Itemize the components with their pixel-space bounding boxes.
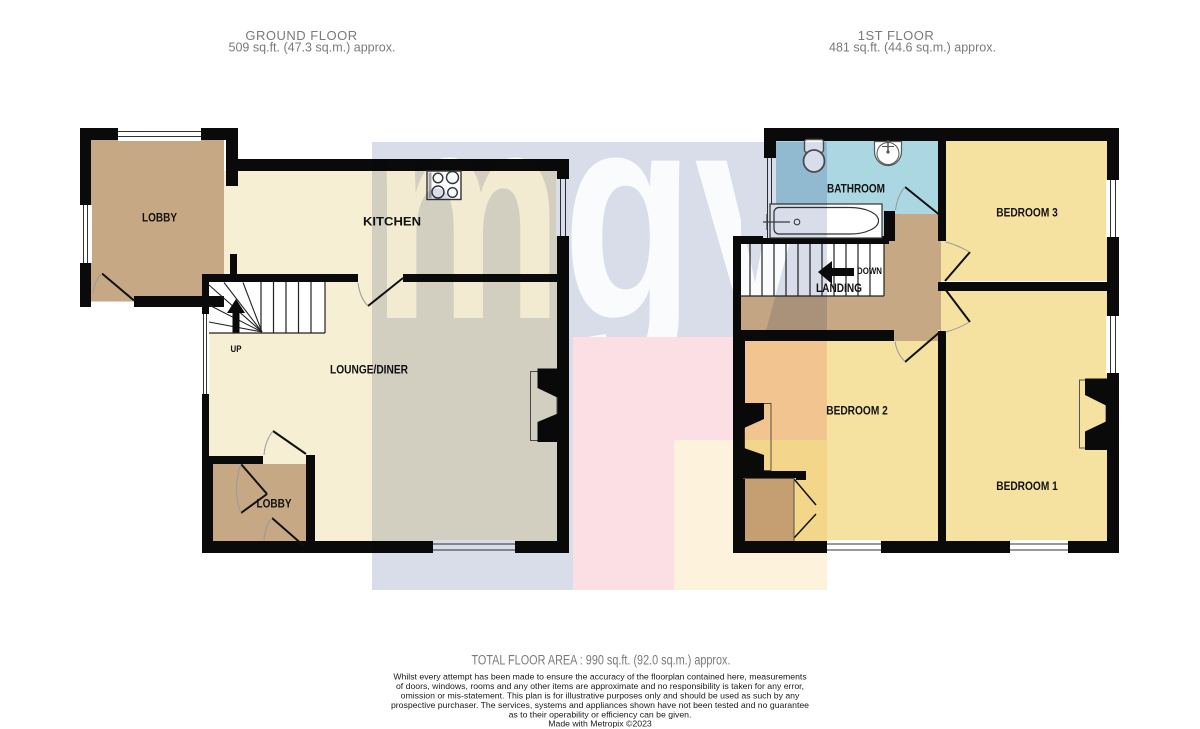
svg-text:LOBBY: LOBBY <box>257 497 292 511</box>
svg-text:of doors, windows, rooms and a: of doors, windows, rooms and any other i… <box>396 681 804 691</box>
svg-text:prospective purchaser. The ser: prospective purchaser. The services, sys… <box>391 700 809 710</box>
svg-text:509 sq.ft. (47.3 sq.m.) approx: 509 sq.ft. (47.3 sq.m.) approx. <box>229 40 396 55</box>
svg-text:UP: UP <box>231 344 243 355</box>
svg-text:BEDROOM 2: BEDROOM 2 <box>826 404 888 418</box>
svg-text:BATHROOM: BATHROOM <box>827 182 885 196</box>
svg-text:Whilst every attempt has been: Whilst every attempt has been made to en… <box>393 672 807 682</box>
svg-text:LOBBY: LOBBY <box>142 211 177 225</box>
svg-text:481 sq.ft. (44.6 sq.m.) approx: 481 sq.ft. (44.6 sq.m.) approx. <box>829 40 996 55</box>
svg-text:BEDROOM 3: BEDROOM 3 <box>996 206 1058 220</box>
svg-text:TOTAL FLOOR AREA : 990 sq.ft.: TOTAL FLOOR AREA : 990 sq.ft. (92.0 sq.m… <box>472 653 731 668</box>
svg-text:DOWN: DOWN <box>857 266 882 277</box>
svg-text:omission or mis-statement. Thi: omission or mis-statement. This plan is … <box>401 691 800 701</box>
svg-text:Made with Metropix ©2023: Made with Metropix ©2023 <box>548 719 652 729</box>
svg-text:BEDROOM 1: BEDROOM 1 <box>996 479 1058 493</box>
